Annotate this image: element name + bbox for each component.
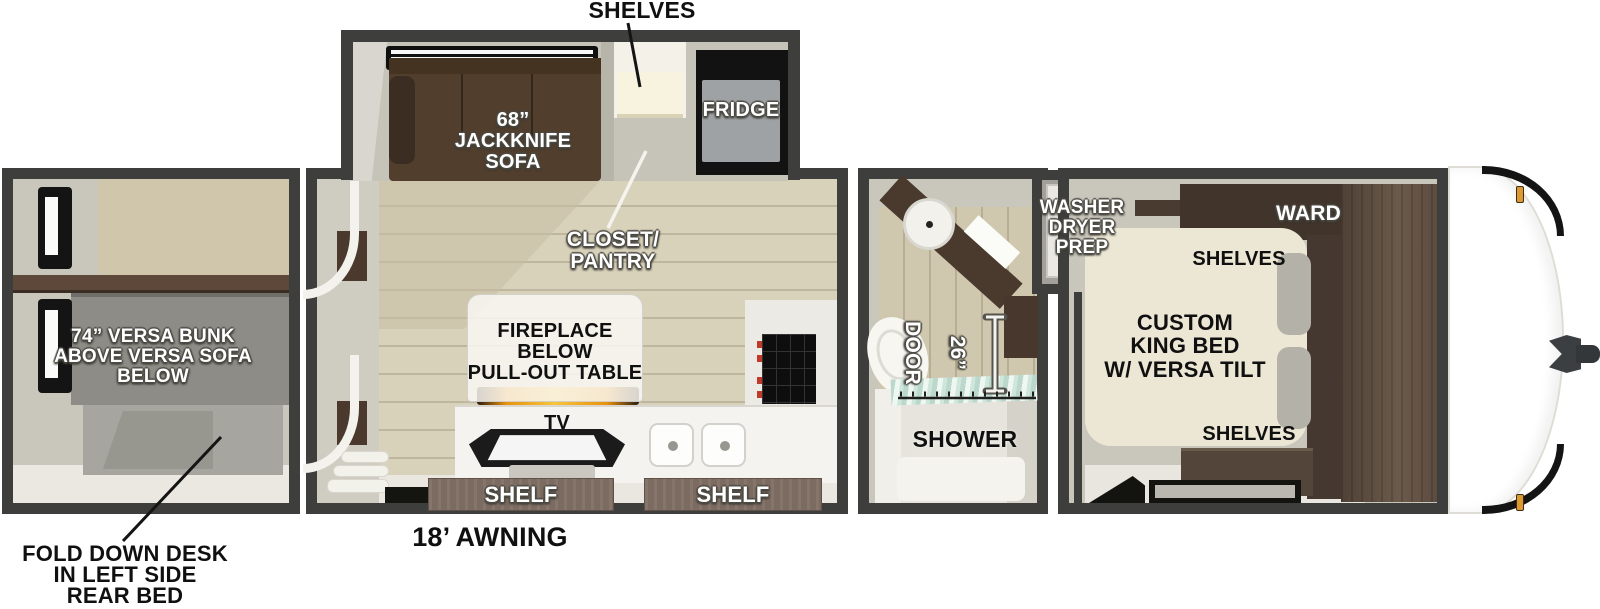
shelves-top-callout: SHELVES bbox=[588, 0, 696, 20]
versa-sofa-cushion bbox=[103, 411, 213, 469]
shelf-right-label: SHELF bbox=[645, 483, 821, 507]
closet-shelf bbox=[617, 72, 683, 118]
entry-step-3 bbox=[327, 479, 389, 493]
slide-wall-left bbox=[341, 30, 353, 180]
closet-divider-wall bbox=[601, 42, 614, 181]
bathroom-room: SHOWER 26” DOOR bbox=[858, 168, 1048, 514]
sink-right bbox=[701, 423, 746, 467]
entry-mat bbox=[385, 487, 433, 503]
sofa-label: 68” JACKKNIFE SOFA bbox=[433, 110, 593, 176]
hitch-bar-icon bbox=[1576, 345, 1600, 363]
shelf-bar-right: SHELF bbox=[644, 478, 822, 511]
awning-callout: 18’ AWNING bbox=[395, 523, 585, 555]
rear-desk-shelf bbox=[13, 275, 289, 293]
door-size-label: 26” DOOR bbox=[934, 311, 990, 395]
shelves-lower-label: SHELVES bbox=[1179, 424, 1319, 448]
bedroom-desk-piece bbox=[1135, 200, 1181, 216]
rear-window-1-icon bbox=[38, 187, 72, 269]
door-text: DOOR bbox=[901, 311, 923, 395]
slide-interior: 68” JACKKNIFE SOFA FRIDGE bbox=[353, 42, 788, 181]
fridge-label: FRIDGE bbox=[702, 100, 780, 124]
entry-step-2 bbox=[333, 465, 389, 477]
rear-bedroom-wood-floor bbox=[98, 179, 289, 279]
door-width-text: 26” bbox=[946, 311, 968, 395]
closet-pantry bbox=[614, 42, 686, 181]
rear-bedroom-room: 74” VERSA BUNK ABOVE VERSA SOFA BELOW bbox=[2, 168, 300, 514]
entry-step-1 bbox=[341, 451, 389, 463]
bunk-label: 74” VERSA BUNK ABOVE VERSA SOFA BELOW bbox=[25, 327, 281, 393]
fireplace-table-label: FIREPLACE BELOW PULL-OUT TABLE bbox=[457, 321, 653, 391]
slide-wall-right bbox=[788, 30, 800, 180]
fold-down-desk-callout: FOLD DOWN DESK IN LEFT SIDE REAR BED bbox=[12, 544, 238, 608]
slide-left-shade bbox=[353, 42, 387, 181]
shelf-left-label: SHELF bbox=[429, 483, 613, 507]
tv-label: TV bbox=[522, 413, 592, 433]
king-bed-label: CUSTOM KING BED W/ VERSA TILT bbox=[1079, 311, 1291, 395]
cooktop-knob-4 bbox=[757, 391, 762, 398]
marker-light-top-icon bbox=[1516, 186, 1524, 203]
slide-wall-top bbox=[341, 30, 800, 42]
vanity-sink-icon bbox=[903, 198, 955, 250]
cooktop-knob-3 bbox=[757, 377, 762, 384]
shower-label: SHOWER bbox=[893, 427, 1037, 457]
shelves-upper-label: SHELVES bbox=[1169, 249, 1309, 273]
cooktop-knob-2 bbox=[757, 355, 762, 362]
closet-floor bbox=[614, 118, 686, 181]
bath-cabinet bbox=[1004, 296, 1038, 358]
washer-dryer-label: WASHER DRYER PREP bbox=[1030, 198, 1134, 268]
tv-icon bbox=[469, 429, 625, 467]
ward-label: WARD bbox=[1180, 203, 1437, 227]
living-kitchen-room: FIREPLACE BELOW PULL-OUT TABLE TV CLOSET… bbox=[306, 168, 848, 514]
ward-right-column bbox=[1341, 184, 1437, 502]
shelf-bar-left: SHELF bbox=[428, 478, 614, 511]
closet-pantry-label: CLOSET/ PANTRY bbox=[555, 229, 671, 277]
floor-rug bbox=[1149, 480, 1301, 503]
marker-light-bottom-icon bbox=[1516, 494, 1524, 511]
floorplan-canvas: 74” VERSA BUNK ABOVE VERSA SOFA BELOW bbox=[0, 0, 1600, 609]
versa-sofa-below bbox=[83, 405, 283, 475]
cooktop bbox=[762, 334, 816, 404]
cooktop-knob-1 bbox=[757, 341, 762, 348]
sink-left bbox=[649, 423, 694, 467]
